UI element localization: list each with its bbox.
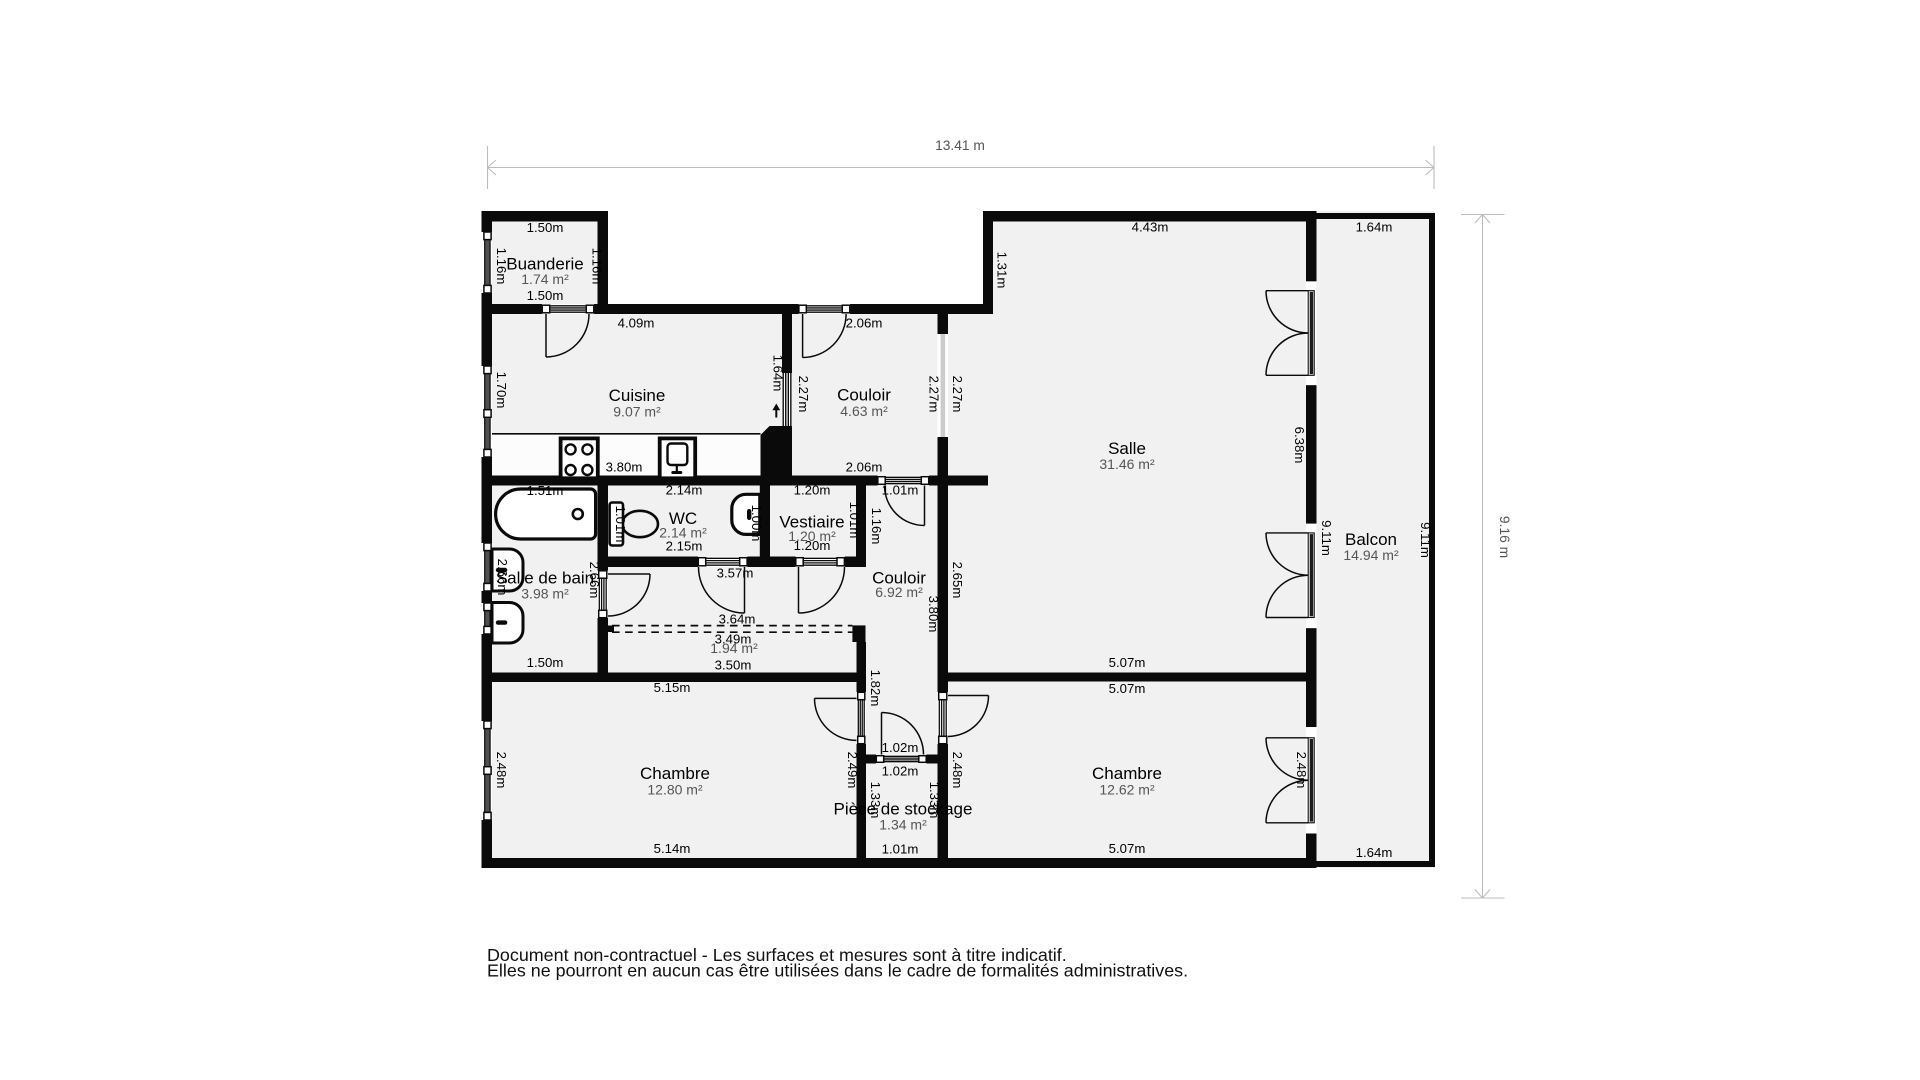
svg-text:1.16m: 1.16m xyxy=(869,508,884,545)
svg-text:Couloir: Couloir xyxy=(837,386,891,405)
svg-text:4.63 m²: 4.63 m² xyxy=(840,403,888,419)
svg-text:6.92 m²: 6.92 m² xyxy=(875,584,923,600)
svg-text:Chambre: Chambre xyxy=(640,764,710,783)
svg-text:2.06m: 2.06m xyxy=(846,316,883,331)
svg-text:Elles ne pourront en aucun cas: Elles ne pourront en aucun cas être util… xyxy=(487,961,1188,981)
svg-text:1.50m: 1.50m xyxy=(527,288,564,303)
svg-text:1.64m: 1.64m xyxy=(1356,845,1393,860)
svg-text:Chambre: Chambre xyxy=(1092,764,1162,783)
svg-text:1.01m: 1.01m xyxy=(882,842,919,857)
svg-text:9.16 m: 9.16 m xyxy=(1497,516,1512,558)
svg-text:2.27m: 2.27m xyxy=(796,376,811,413)
svg-text:Cuisine: Cuisine xyxy=(609,386,666,405)
svg-text:12.62 m²: 12.62 m² xyxy=(1099,782,1155,798)
svg-text:3.80m: 3.80m xyxy=(926,596,941,633)
svg-text:1.20m: 1.20m xyxy=(794,538,831,553)
svg-text:1.70m: 1.70m xyxy=(494,372,509,409)
svg-text:3.64m: 3.64m xyxy=(719,612,756,627)
svg-text:1.74 m²: 1.74 m² xyxy=(521,271,569,287)
svg-text:1.33m: 1.33m xyxy=(927,782,942,819)
svg-text:1.31m: 1.31m xyxy=(995,252,1010,289)
svg-text:9.11m: 9.11m xyxy=(1418,522,1433,558)
svg-text:1.01m: 1.01m xyxy=(847,502,862,539)
svg-text:1.01m: 1.01m xyxy=(613,506,628,543)
svg-text:1.02m: 1.02m xyxy=(882,764,919,779)
svg-text:3.98 m²: 3.98 m² xyxy=(521,586,569,602)
svg-text:6.38m: 6.38m xyxy=(1292,427,1307,464)
svg-text:9.07 m²: 9.07 m² xyxy=(613,404,661,420)
svg-text:2.48m: 2.48m xyxy=(494,752,509,789)
svg-text:4.09m: 4.09m xyxy=(618,316,655,331)
svg-text:1.51m: 1.51m xyxy=(527,483,564,498)
svg-text:5.07m: 5.07m xyxy=(1109,681,1146,696)
svg-text:2.48m: 2.48m xyxy=(950,752,965,789)
svg-text:1.34 m²: 1.34 m² xyxy=(879,817,927,833)
svg-text:3.49m: 3.49m xyxy=(715,632,752,647)
svg-text:4.43m: 4.43m xyxy=(1132,220,1169,235)
svg-text:1.50m: 1.50m xyxy=(527,655,564,670)
svg-text:3.57m: 3.57m xyxy=(717,566,754,581)
svg-text:1.16m: 1.16m xyxy=(590,248,605,285)
svg-text:1.00m: 1.00m xyxy=(749,505,764,542)
svg-text:2.15m: 2.15m xyxy=(666,539,703,554)
svg-text:2.66m: 2.66m xyxy=(587,562,602,599)
svg-text:1.20m: 1.20m xyxy=(794,483,831,498)
svg-text:5.14m: 5.14m xyxy=(654,841,691,856)
svg-text:1.16m: 1.16m xyxy=(494,248,509,285)
svg-text:3.50m: 3.50m xyxy=(715,658,752,673)
svg-text:1.64m: 1.64m xyxy=(770,355,785,392)
svg-text:2.27m: 2.27m xyxy=(950,376,965,413)
svg-text:5.15m: 5.15m xyxy=(654,680,691,695)
svg-text:2.49m: 2.49m xyxy=(845,752,860,789)
svg-text:5.07m: 5.07m xyxy=(1109,655,1146,670)
svg-text:1.82m: 1.82m xyxy=(868,670,883,707)
svg-text:1.01m: 1.01m xyxy=(882,483,919,498)
svg-text:2.14m: 2.14m xyxy=(666,483,703,498)
svg-text:1.02m: 1.02m xyxy=(882,740,919,755)
svg-text:1.64m: 1.64m xyxy=(1356,220,1393,235)
svg-text:2.66m: 2.66m xyxy=(495,559,510,596)
svg-text:2.06m: 2.06m xyxy=(846,460,883,475)
svg-text:31.46 m²: 31.46 m² xyxy=(1099,456,1155,472)
svg-text:14.94 m²: 14.94 m² xyxy=(1343,547,1399,563)
svg-text:13.41 m: 13.41 m xyxy=(935,138,985,153)
svg-text:5.07m: 5.07m xyxy=(1109,841,1146,856)
svg-text:1.33m: 1.33m xyxy=(868,782,883,819)
svg-text:9.11m: 9.11m xyxy=(1319,520,1334,556)
svg-text:12.80 m²: 12.80 m² xyxy=(647,782,703,798)
svg-text:3.80m: 3.80m xyxy=(606,460,643,475)
svg-text:2.65m: 2.65m xyxy=(950,562,965,599)
svg-text:2.27m: 2.27m xyxy=(927,376,942,413)
svg-text:1.50m: 1.50m xyxy=(527,220,564,235)
svg-text:2.48m: 2.48m xyxy=(1294,752,1309,789)
